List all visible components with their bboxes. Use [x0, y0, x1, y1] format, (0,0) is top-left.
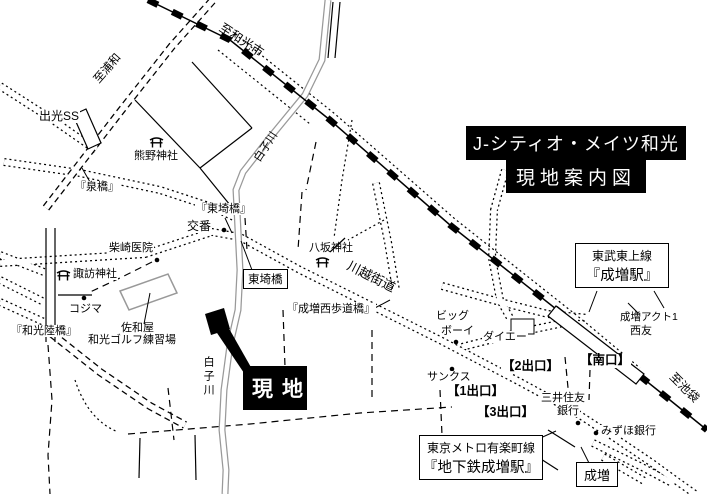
label-south-exit: 【南口】: [579, 354, 631, 368]
poi-dot: [155, 258, 160, 263]
label-daiei: ダイエー: [482, 331, 528, 343]
site-location-box: 現地: [243, 366, 307, 410]
label-big-boy-2: ボーイ: [440, 325, 475, 337]
label-big-boy-1: ビッグ: [435, 310, 470, 322]
tobu-line-name: 東武東上線: [576, 244, 668, 264]
label-wako-golf: 和光ゴルフ練習場: [87, 334, 177, 346]
poi-dot: [82, 296, 87, 301]
higashisaki-bridge-box: 東埼橋: [243, 269, 288, 289]
label-wako-overpass: 『和光陸橋』: [10, 325, 78, 337]
label-exit-3: 【3出口】: [476, 406, 535, 420]
label-suwa-shrine: 諏訪神社: [72, 268, 118, 280]
golf-range-building: [120, 274, 177, 310]
map-title: J-シティオ・メイツ和光 現地案内図: [466, 126, 686, 193]
label-mizuho-bank: みずほ銀行: [600, 425, 657, 437]
label-izumi-bridge: 『泉橋』: [74, 181, 120, 193]
metro-narimasu-station-box: 東京メトロ有楽町線 『地下鉄成増駅』: [419, 435, 543, 480]
metro-line-name: 東京メトロ有楽町線: [420, 436, 542, 456]
poi-dot: [576, 421, 581, 426]
torii-icon: [316, 258, 329, 268]
label-exit-1: 【1出口】: [446, 385, 505, 399]
tobu-narimasu-station-box: 東武東上線 『成増駅』: [575, 243, 669, 288]
label-kumano-shrine: 熊野神社: [133, 150, 179, 162]
label-seiyu: 西友: [629, 325, 653, 337]
map-title-line1: J-シティオ・メイツ和光: [466, 126, 686, 160]
label-idemitsu-ss: 出光SS: [38, 110, 80, 123]
roads-dashed: [46, 0, 213, 425]
map-title-line2: 現地案内図: [506, 160, 646, 193]
label-kojima: コジマ: [68, 303, 103, 315]
narimasu-box: 成増: [576, 462, 618, 487]
label-yasaka-shrine: 八坂神社: [308, 242, 354, 254]
torii-icon: [150, 138, 163, 148]
poi-dot: [454, 340, 459, 345]
site-guide-map: 出光SS 熊野神社 『泉橋』 『東埼橋』 交番 柴崎医院 諏訪神社 コジマ 『和…: [0, 0, 707, 494]
torii-icon: [57, 271, 70, 281]
label-sawaya: 佐和屋: [120, 322, 155, 334]
label-narimasu-act1: 成増アクト1: [619, 312, 679, 324]
label-narimasu-nishi-bridge: 『成増西歩道橋』: [286, 303, 376, 315]
label-koban: 交番: [186, 220, 212, 233]
tobu-station-name: 『成増駅』: [576, 264, 668, 287]
label-exit-2: 【2出口】: [501, 360, 560, 374]
label-sunkus: サンクス: [426, 371, 472, 383]
label-higashisaki-bridge: 『東埼橋』: [195, 203, 252, 215]
label-shibasaki-clinic: 柴崎医院: [108, 242, 154, 254]
metro-station-name: 『地下鉄成増駅』: [420, 456, 542, 479]
poi-dot: [594, 431, 599, 436]
poi-dot: [222, 228, 227, 233]
label-smbc-1: 三井住友: [540, 392, 586, 404]
label-shirako-river-vertical: 白子川: [201, 356, 215, 398]
label-smbc-2: 銀行: [556, 405, 580, 417]
